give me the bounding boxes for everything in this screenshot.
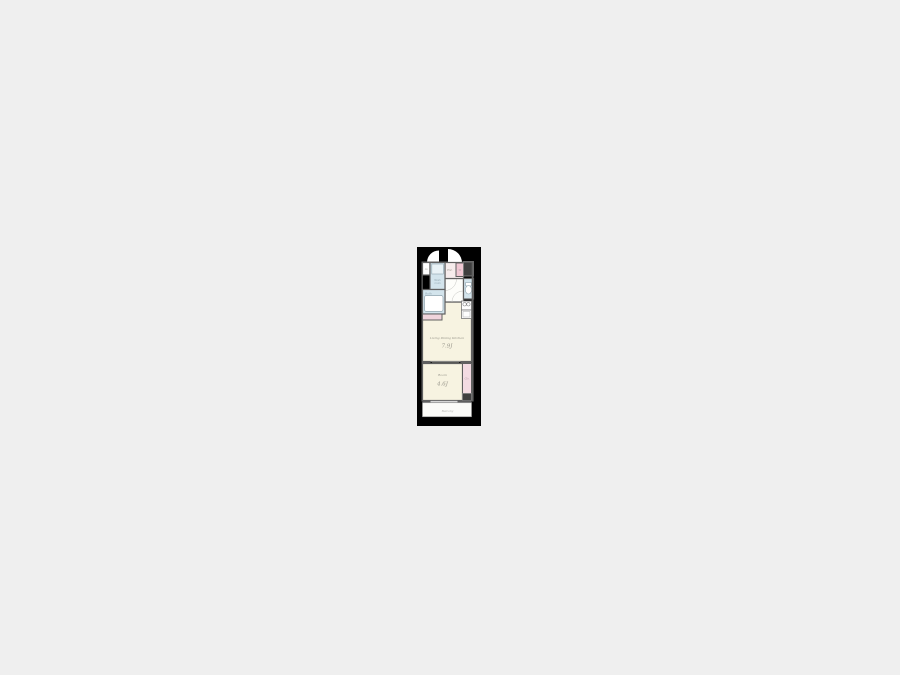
toilet-icon xyxy=(465,286,471,294)
floorplan-image[interactable]: Living Dining Kitchen 7.9J Room 4.6J Bat… xyxy=(417,247,481,426)
pipe-space-label: PS xyxy=(424,268,428,271)
outer-wall-left xyxy=(422,262,423,402)
bath-label: Bath xyxy=(424,292,432,296)
washbasin-icon xyxy=(432,264,444,274)
entrance-label: Ent. xyxy=(446,268,453,272)
bedroom-name-label: Room xyxy=(437,373,447,377)
duct-box-bottom xyxy=(463,394,472,401)
outer-wall-right xyxy=(472,262,474,402)
burner-icon-left xyxy=(463,303,466,306)
sink-icon xyxy=(463,312,470,318)
washroom-label-line2: room xyxy=(434,282,441,285)
balcony-label: Balcony xyxy=(441,409,454,413)
closet-label: Clo. xyxy=(465,378,470,381)
floorplan-svg: Living Dining Kitchen 7.9J Room 4.6J Bat… xyxy=(417,247,481,426)
ldk-name-label: Living Dining Kitchen xyxy=(429,336,464,340)
outer-wall-top-left xyxy=(422,262,449,263)
bedroom-size-label: 4.6J xyxy=(436,382,449,388)
storage-strip xyxy=(423,314,443,320)
burner-icon-right xyxy=(467,303,470,306)
ldk-size-label: 7.9J xyxy=(442,344,454,350)
washer-label: W xyxy=(458,268,461,272)
page-background: Living Dining Kitchen 7.9J Room 4.6J Bat… xyxy=(0,0,900,675)
outer-wall-top-right xyxy=(462,262,474,263)
bathtub-icon xyxy=(425,296,444,312)
